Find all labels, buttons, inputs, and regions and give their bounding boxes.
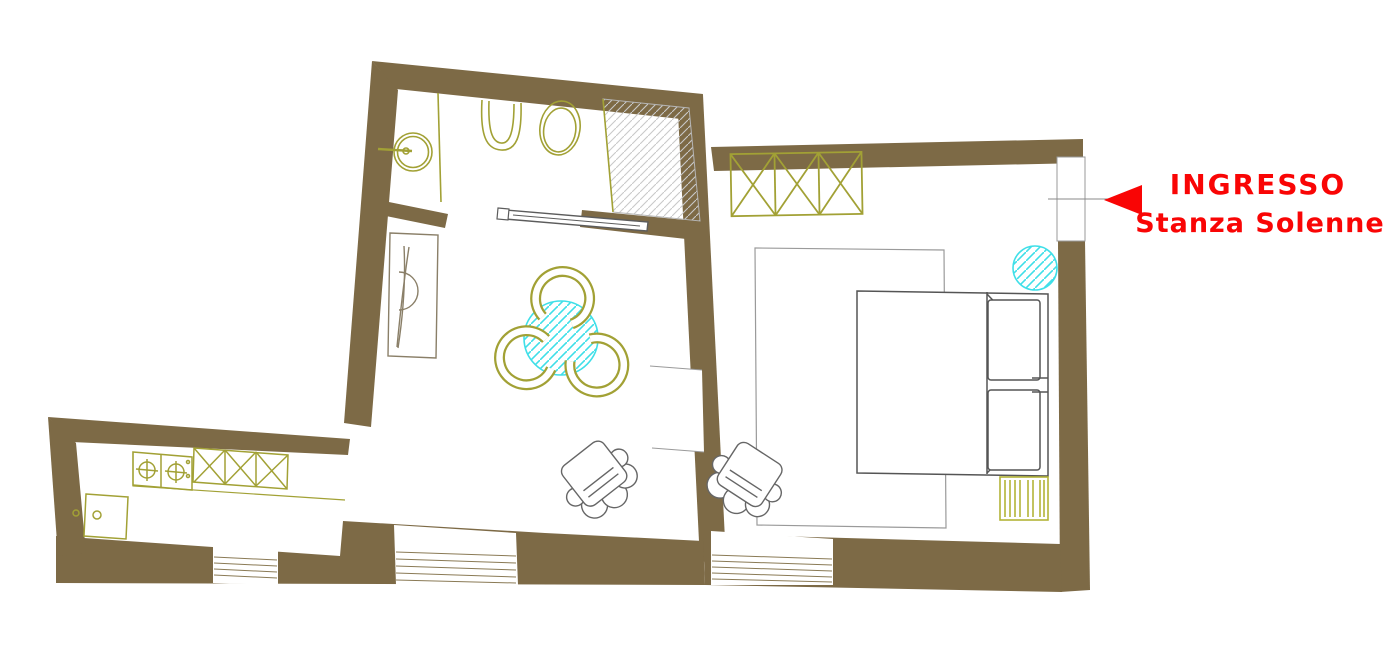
kitchen-window [213, 541, 278, 585]
dining-set [495, 266, 635, 403]
kitchen-cabinets [193, 448, 288, 489]
wall-segment [48, 417, 350, 455]
pillow [988, 390, 1040, 470]
wall-segment [56, 521, 705, 585]
bathroom-partition [438, 93, 441, 202]
radiator [1000, 477, 1048, 520]
bedroom-window [711, 531, 833, 585]
console-table [388, 233, 438, 358]
bidet [482, 100, 521, 150]
bathroom [378, 93, 584, 202]
floor-plan-svg: INGRESSO Stanza Solenne [0, 0, 1400, 659]
kitchen-units [73, 448, 345, 539]
shower [603, 99, 700, 221]
living-window [394, 525, 518, 585]
entrance-label-line2: Stanza Solenne [1135, 208, 1384, 239]
bedroom-side-table [1013, 246, 1057, 290]
living-armchair [549, 431, 650, 531]
entrance-label-line1: INGRESSO [1170, 168, 1346, 201]
wall-segment [711, 139, 1083, 171]
living-bedroom-doorway [650, 366, 704, 452]
double-bed [857, 291, 1048, 476]
wall-segment [381, 201, 448, 228]
pillow [988, 300, 1040, 380]
entrance: INGRESSO Stanza Solenne [1048, 157, 1385, 241]
hob [133, 452, 192, 490]
wall-segment [1058, 240, 1090, 592]
floor-plan-page: INGRESSO Stanza Solenne [0, 0, 1400, 659]
